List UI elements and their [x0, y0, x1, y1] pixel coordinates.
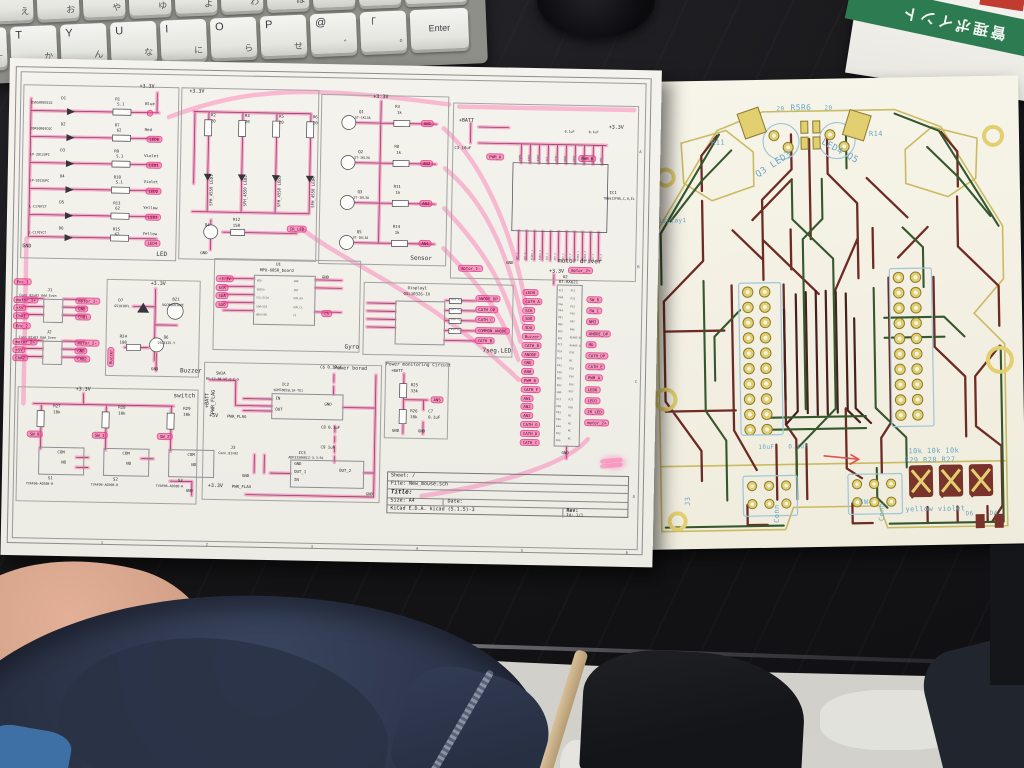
switch-ref: S2 [113, 478, 118, 482]
ic-pin: AO2_2 [553, 253, 556, 260]
diode-part: OSR5080SCGC [31, 101, 53, 105]
title-block: Sheet: / File: New_mouse.sch Title: Size… [386, 471, 629, 518]
keyboard-key[interactable]: 8 ゆ [128, 0, 172, 16]
transistor-ref: Q1 [359, 111, 364, 115]
pcb-label: 20 [824, 105, 832, 112]
key-sub-label: や [112, 0, 122, 13]
net-chip: CATH_C [475, 316, 496, 323]
net-chip: PWM_A [486, 153, 504, 160]
cap-label: C9 1uF [321, 446, 336, 451]
ic-pin: P05 [557, 377, 562, 380]
pcb-label: R14 [869, 130, 883, 138]
ic-pin: PGND2_2 [584, 251, 587, 261]
ic-pin: PC6 [557, 350, 562, 353]
net-gnd: GND [322, 276, 329, 281]
net-gnd: GND [392, 429, 399, 434]
keyboard-key[interactable]: す [0, 27, 8, 68]
net-chip: SDA [215, 292, 228, 299]
diode-part: GS1010FL [114, 305, 130, 309]
net-chip: IR_LED [584, 408, 605, 415]
net-chip: CATH_DP [585, 352, 608, 359]
switch-ref: SW1A [216, 372, 226, 377]
net-chip: LED2 [145, 188, 161, 195]
switch-pin: NO [61, 461, 66, 465]
resistor-value: 5.1 [117, 103, 124, 108]
net-chip: Buzzer [522, 333, 543, 340]
ic-pin: P03 [557, 384, 562, 387]
key-main-label: @ [315, 17, 327, 29]
size-field: Size: A4 [391, 498, 415, 504]
ic-pin: SDA/SDI [256, 305, 267, 308]
net-chip: LED6 [585, 386, 601, 393]
resistor-ref: R29 [183, 407, 190, 412]
net-chip: GND [75, 305, 88, 312]
ic-pin: NC [568, 414, 571, 417]
net-chip: AN1 [421, 120, 434, 127]
net-chip: CATH_B [522, 342, 543, 349]
keyboard-key[interactable]: 5 え [0, 0, 34, 22]
keyboard-key[interactable]: 「 ° [360, 10, 408, 52]
key-sub-label: へ [342, 0, 352, 4]
sensor-row: Q3 ST-1KL3A R11 1k AN3 [319, 190, 448, 230]
ic-pin: P81 [558, 316, 563, 319]
switch-block-content: +3.3V R27 10k SW_0 COM NO S1 TVAF06-A020… [15, 386, 198, 504]
key-main-label: Y [65, 27, 73, 39]
sensor-row: Q1 ST-1KL3A R3 1k AN1 [320, 110, 449, 150]
ic-pin: PGND1_1 [530, 250, 533, 260]
resistor-ref: R11 [394, 185, 401, 190]
ic-pin: P42 [556, 431, 561, 434]
ic-pin: PC7 [557, 397, 562, 400]
net-33v: +3.3V [76, 387, 91, 393]
net-chip: motor_2- [74, 339, 99, 346]
switch-part: TVAF06-A020B-R [26, 482, 53, 486]
ic-body: GND OUT_1 IN OUT_2 [290, 459, 365, 488]
pcb-label: D6 [966, 510, 974, 517]
resistor-ref: R24 [120, 335, 127, 340]
ic-pin: PGND1_2 [538, 250, 541, 260]
key-main-label: Enter [410, 8, 470, 50]
switch-part: MS-12-B4-W2-Q-E-S [206, 378, 239, 382]
pcb-label: 0.1uF [788, 443, 808, 450]
ic-pin: PE1 [556, 411, 561, 414]
ic-pin: GND [324, 403, 331, 408]
pcb-label: R11 [711, 139, 725, 147]
net-chip: CATH_B [475, 337, 496, 344]
key-sub-label: に [194, 43, 204, 56]
kicad-field: KiCad E.D.A. kicad (5.1.5)-3 [390, 506, 474, 513]
schematic-paper: 123456 ABCD LED Sensor motor driver Gyro… [0, 58, 661, 567]
ic-ref: U1 [276, 263, 281, 267]
net-chip: SW_1 [586, 307, 602, 314]
ic-body [253, 275, 316, 326]
net-33v: +3.3V [549, 269, 564, 275]
net-chip: CATH_G [520, 421, 541, 428]
ic-pin: P56 [569, 382, 574, 385]
net-chip: AN3 [520, 412, 533, 419]
resistor-label: R16 62 [451, 298, 460, 301]
keyboard-key[interactable]: ¥ - [358, 0, 402, 6]
pcb-label: 20 [776, 105, 784, 112]
frame-col-ref: 5 [521, 549, 524, 553]
net-label: Violet [144, 181, 159, 186]
led-row: D1 OSR5080SCGC R1 5.1 Blue [23, 96, 179, 124]
key-sub-label: ° [399, 38, 403, 48]
ic-pin: P57 [569, 390, 574, 393]
ic-part: MPU-6050_board [260, 269, 294, 274]
sensor-row: Q2 ST-1KL3A R8 1k AN2 [320, 150, 449, 190]
net-chip: AN0 [521, 368, 534, 375]
resistor-ref: R5 [279, 115, 284, 119]
diode-part: L-C170YCT [29, 231, 47, 235]
ic-pin: PA1 [558, 336, 563, 339]
ic-pin: P27 [569, 398, 574, 401]
key-sub-label: ゛ [344, 37, 354, 50]
ic-pin: VDDIO [257, 287, 265, 290]
gyro-block-content: U1 MPU-6050_board VDDVDDIOSCL/SCLKSDA/SD… [212, 258, 361, 353]
net-chip: motor_1+ [13, 296, 38, 303]
net-chip: PWM_B [521, 377, 539, 384]
title-block-divider [442, 498, 443, 505]
net-chip: ANODE_DP [586, 330, 611, 337]
ic-pin: NC [568, 437, 571, 440]
keyboard-key[interactable]: P せ [260, 15, 308, 57]
net-gnd: GND [186, 489, 193, 494]
key-main-label: O [215, 21, 224, 33]
resistor-value: 1k [395, 231, 400, 235]
resistor-value: 20 [279, 121, 284, 125]
net-chip [147, 110, 153, 117]
pm-block-content: +BATT R25 33k R26 10k C7 0.1uF AN5 GND G… [384, 361, 449, 439]
frame-row-ref: D [633, 495, 636, 499]
key-main-label: I [165, 23, 169, 35]
net-chip: motor_2+ [584, 419, 609, 426]
switch-ref: S1 [48, 477, 53, 481]
ic-pin: BIN1 [563, 155, 566, 161]
net-chip: AN1 [521, 394, 534, 401]
net-chip: AN4 [418, 240, 431, 247]
ic-pin: VDD [257, 279, 262, 282]
resistor-ref: R3 [395, 105, 400, 109]
transistor-ref: Q3 [357, 191, 362, 195]
resistor-value: 20 [211, 120, 216, 124]
net-chip: SW_0 [27, 430, 43, 437]
led-row: D4 LP-2012UPC R10 5.1 Violet LED2 [21, 174, 177, 202]
key-sub-label: お [66, 2, 76, 15]
pcb-label: 10uF [758, 444, 774, 451]
ic-pin: PGND2_1 [576, 251, 579, 261]
keyboard-key[interactable]: ^ へ [312, 0, 356, 8]
net-chip: IR_LED [287, 225, 308, 232]
net-gnd: GND [506, 262, 513, 267]
key-main-label: U [115, 25, 123, 37]
resistor-ref: R12 [233, 218, 240, 223]
diode-ref: D6 [59, 227, 64, 231]
ic-pin: PA3 [558, 329, 563, 332]
sensor-block-content: +3.3V Q1 ST-1KL3A R3 1k AN1 Q2 ST-1KL3A … [318, 94, 449, 266]
net-chip: SDO [215, 301, 228, 308]
connector-body [42, 341, 62, 365]
ir-led-name: SFH_4550 LED1 [209, 175, 214, 206]
ic-pin: STBY [554, 155, 557, 161]
key-sub-label: - [394, 0, 397, 2]
keyboard-key[interactable]: - ほ [266, 0, 310, 10]
switch-ref: S3 [178, 479, 183, 483]
switch-body: COM NO [103, 448, 150, 477]
resistor-value: 150 [233, 224, 240, 229]
resistor-ref: R25 [411, 384, 418, 389]
frame-row-ref: B [637, 265, 640, 269]
ic-pin: AO1_1 [515, 253, 518, 260]
resistor-ref: R6 [313, 116, 318, 120]
sheet-field: Sheet: / [391, 473, 415, 479]
ic-pin: P44 [556, 425, 561, 428]
net-chip: LED1 [146, 162, 162, 169]
key-sub-label: ん [94, 47, 104, 60]
key-main-label: Back Space [404, 0, 468, 4]
switch-part: TVAF06-A020B-R [91, 484, 118, 488]
ic-pin: RS485-A [570, 343, 581, 346]
cap-label: C6 0.33uF [320, 366, 342, 371]
transistor-ref: Q5 [357, 231, 362, 235]
ic-pin: PA6 [558, 302, 563, 305]
switch-pin: NO [126, 462, 131, 466]
resistor-value: 5.1 [116, 155, 123, 160]
pcb-label: Conn [878, 503, 886, 522]
ic-pin: PC4 [557, 357, 562, 360]
ir-led-column: R5 20 SFH_4550 LED3 [263, 89, 299, 240]
key-sub-label: え [20, 4, 30, 17]
keyboard-key[interactable]: 7 や [82, 0, 126, 18]
net-label: Violet [144, 155, 159, 160]
resistor-value: 10k [183, 413, 190, 418]
ic-pin: PWMB [581, 156, 584, 162]
mcu-area: +3.3V U2 RT-RX621 VCCP80PA6PA4P81PB0PA3P… [517, 271, 646, 468]
net-gnd: GND [366, 493, 373, 498]
ic-pin: P35 [569, 351, 574, 354]
net-chip: SDO [522, 315, 535, 322]
ic-pin: RS485-B [570, 336, 581, 339]
net-5v: +5V [209, 414, 218, 420]
net-chip: CATH_E [585, 363, 606, 370]
ic-pin: PC2 [571, 289, 576, 292]
net-33v: +3.3V [139, 84, 154, 90]
date-field: Date: [447, 499, 462, 505]
title-field: Title: [391, 489, 413, 496]
pcb-label: R5R6 [790, 103, 811, 112]
resistor-value: 180 [119, 341, 126, 346]
ic-pin: GND [557, 391, 562, 394]
led-row: D2 OSR5080SCGC R7 62 Red LED6 [22, 122, 178, 150]
key-main-label: 「 [365, 15, 377, 31]
frame-row-ref: A [639, 150, 642, 154]
net-gnd: GND [200, 252, 207, 257]
ic-pin: P36 [569, 375, 574, 378]
display-part: OSL10326-IX [403, 293, 430, 298]
buzzer-ref: BZ1 [172, 298, 179, 303]
ic-pin: BO1_2 [599, 254, 602, 261]
net-label: Yellow [143, 207, 158, 212]
keyboard-key[interactable]: O ら [210, 17, 258, 59]
pcb-label: J3 [684, 497, 692, 506]
buzzer-block-content: +3.3V D7 GS1010FL BZ1 UGCM0603APE R24 18… [105, 279, 201, 378]
keyboard-key[interactable]: 9 よ [174, 0, 218, 14]
switch-column: R27 10k SW_0 COM NO S1 TVAF06-A020B-R [26, 398, 90, 499]
net-chip: CATH_F [521, 386, 542, 393]
led-row: D5 L-C170YCT R13 62 Yellow LED3 [21, 200, 177, 228]
pcb-switch-footprints [909, 464, 1004, 530]
net-label: Blue [145, 103, 155, 108]
net-chip: Enc_1 [14, 278, 32, 285]
net-chip: CS [321, 310, 332, 317]
resistor-label: R19 62 [451, 328, 460, 331]
resistor-value: 5.1 [116, 181, 123, 186]
net-gnd: GND [151, 368, 158, 373]
diode-ref: D1 [61, 97, 66, 101]
green-banner: 管理ポイント [845, 0, 1024, 63]
net-33v: +3.3V [609, 126, 624, 132]
resistor-value: 1k [396, 151, 401, 155]
switch-body: COM NO [38, 447, 85, 476]
ic-pin: AUX_DA [293, 297, 302, 300]
diode-ref: D3 [60, 149, 65, 153]
ic-pin: VM3 [590, 157, 593, 162]
net-chip: CATH_C [520, 438, 541, 445]
diode-part: LP-2012UPC [30, 153, 50, 157]
key-main-label: P [265, 19, 273, 31]
transistor-part: ST-1KL3A [354, 157, 370, 161]
ic-pin: NC [568, 421, 571, 424]
ir-led-column: R4 20 SFH_4550 LED2 [229, 88, 265, 239]
resistor-ref: R4 [245, 115, 250, 119]
highlighter-smudge [600, 455, 626, 469]
key-sub-label: ほ [296, 0, 306, 6]
keyboard-key[interactable]: U な [110, 21, 158, 63]
resistor-ref: R14 [393, 225, 400, 230]
net-chip: GND [74, 347, 87, 354]
title-block-divider [388, 488, 628, 494]
net-chip: CATH_DP [475, 305, 498, 312]
diode-ref: D7 [118, 299, 123, 303]
transistor-ref: Q4 [205, 224, 210, 228]
cap-label: 0.1uF [565, 131, 575, 135]
key-sub-label: ゆ [158, 0, 168, 12]
net-gnd: GND [561, 452, 568, 457]
ic-part: TB6612FNG,C,8,EL [603, 197, 634, 201]
net-gnd: GND [242, 475, 249, 480]
net-batt: +BATT [459, 119, 474, 125]
pwr-flag: PWR_FLAG [232, 485, 251, 490]
net-chip: motor_1- [75, 297, 100, 304]
resistor-ref: R8 [394, 145, 399, 149]
display-ref: Display1 [408, 287, 427, 292]
ic-pin: AO2_1 [546, 253, 549, 260]
ic-pin: VM2 [599, 158, 602, 163]
ic-pin: BO2_1 [561, 253, 564, 260]
ic-pin: GND [294, 279, 299, 282]
keyboard-key[interactable]: I に [160, 19, 208, 61]
net-chip: +3.3V [216, 275, 234, 282]
id-field: Id: 1/1 [566, 514, 583, 519]
pcb-label: yellow violet [905, 504, 965, 513]
keyboard-key[interactable]: 0 わ [220, 0, 264, 12]
ic-body: IN OUT GND [271, 393, 343, 420]
cap-label: C3 10uF [454, 147, 471, 152]
frame-col-ref: 6 [626, 551, 629, 555]
ic-pin: IN [275, 397, 280, 401]
buzzer-part: UGCM0603APE [162, 304, 184, 308]
ic-pin: PA2 [557, 363, 562, 366]
net-chip: +5V [13, 304, 26, 311]
net-chip: Enc_2 [13, 322, 31, 329]
power-block-content: SW1A MS-12-B4-W2-Q-E-S +BATT PWR_FLAG C6… [202, 362, 383, 503]
ic-pin: P10 [569, 367, 574, 370]
switch-pin: COM [122, 452, 129, 457]
net-chip: SCK [522, 306, 535, 313]
net-33v: +3.3V [151, 282, 166, 288]
keyboard-key[interactable]: 6 お [36, 0, 80, 20]
ic-pin: P86 [570, 328, 575, 331]
net-gnd: GND [418, 430, 425, 435]
ic-pin: PC5 [558, 343, 563, 346]
diode-part: OSR5080SCGC [31, 127, 53, 131]
ic-pin: P80 [558, 295, 563, 298]
keyboard-key[interactable]: Back Space [404, 0, 468, 4]
net-chip: ANODE [521, 350, 539, 357]
ic-pin: P40 [556, 438, 561, 441]
transistor-part: ST-1KL3A [353, 237, 369, 241]
pcb-label: display1 [654, 217, 686, 225]
ic-pin: PB0 [558, 323, 563, 326]
key-sub-label: せ [294, 39, 304, 52]
keyboard-key[interactable]: @ ゛ [310, 12, 358, 54]
ir-led-name: SFH_4550 LED2 [243, 175, 248, 206]
net-33v: +3.3V [208, 484, 223, 490]
ic-pin: AIN1 [536, 155, 539, 161]
resistor-value: 20 [313, 122, 318, 126]
ic-pin: P30 [557, 370, 562, 373]
cap-label: C8 0.1uF [321, 426, 340, 431]
ic-pin: NC [568, 429, 571, 432]
ic-pin: IN [294, 479, 299, 483]
ic-pin: P85 [568, 406, 573, 409]
net-chip: CATH_A [522, 298, 543, 305]
net-chip: LED0 [523, 289, 539, 296]
zipper [428, 669, 494, 768]
net-chip: AN3 [419, 200, 432, 207]
encoder-area: Enc_1 J1 Conn_02x03_Odd_Even motor_1++5V… [12, 288, 114, 374]
ic-ref: IC2 [282, 383, 289, 388]
file-field: File: New_mouse.sch [391, 481, 448, 488]
ir-led-name: SFH_4550 LED3 [277, 176, 282, 207]
pcb-dark-trace-bundle [784, 290, 871, 424]
ic-pin: P87 [570, 320, 575, 323]
net-chip: LED6 [146, 136, 162, 143]
keyboard-key[interactable]: Enter [410, 8, 470, 50]
resistor-value: 10k [410, 416, 417, 421]
connector-part: Conn_01x02 [218, 452, 238, 456]
pcb-label: R29 R28 R27 [905, 456, 956, 465]
key-main-label: T [15, 29, 22, 41]
resistor-value: 33k [411, 390, 418, 395]
key-sub-label: す [0, 51, 4, 64]
transistor-part: 2SC3325-Y [158, 342, 176, 346]
transistor-part: ST-1KL3A [355, 117, 371, 121]
net-chip: COMMON_ANODE [475, 326, 510, 334]
ic-pin: BO1_1 [591, 254, 594, 261]
net-chip: LED1 [584, 397, 600, 404]
net-label: Yellow [143, 233, 158, 238]
